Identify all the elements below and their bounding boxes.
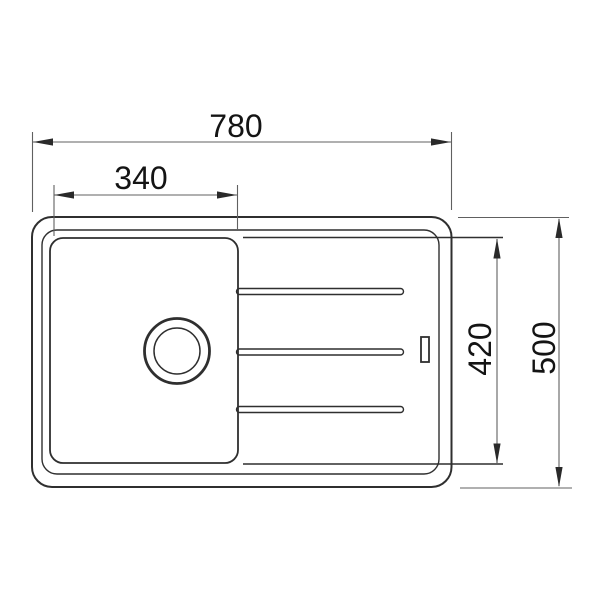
arrowhead-up-icon xyxy=(555,218,562,238)
drainboard-groove-2 xyxy=(237,349,404,355)
sink-body xyxy=(32,217,503,487)
drain-inner-circle xyxy=(154,328,200,374)
tap-hole xyxy=(421,337,429,362)
drawing-svg: 780 340 420 500 xyxy=(0,0,600,600)
sink-dimension-drawing: 780 340 420 500 xyxy=(0,0,600,600)
dimension-inner-depth: 420 xyxy=(462,239,501,464)
dimension-bowl-width: 340 xyxy=(54,160,238,236)
arrowhead-right-icon xyxy=(431,138,451,145)
sink-rim-outline xyxy=(42,230,439,474)
arrowhead-down-icon xyxy=(493,444,500,464)
dimension-label-780: 780 xyxy=(209,108,262,144)
drainboard-groove-1 xyxy=(237,289,404,295)
arrowhead-up-icon xyxy=(493,239,500,259)
arrowhead-left-icon xyxy=(54,191,74,198)
dimension-label-500: 500 xyxy=(526,321,562,374)
arrowhead-right-icon xyxy=(217,191,237,198)
sink-outer-outline xyxy=(32,217,452,487)
dimension-label-420: 420 xyxy=(462,322,498,375)
arrowhead-left-icon xyxy=(33,138,53,145)
arrowhead-down-icon xyxy=(555,467,562,487)
drainboard-groove-3 xyxy=(237,407,404,413)
dimension-label-340: 340 xyxy=(114,160,167,196)
dimension-overall-width: 780 xyxy=(33,108,452,212)
